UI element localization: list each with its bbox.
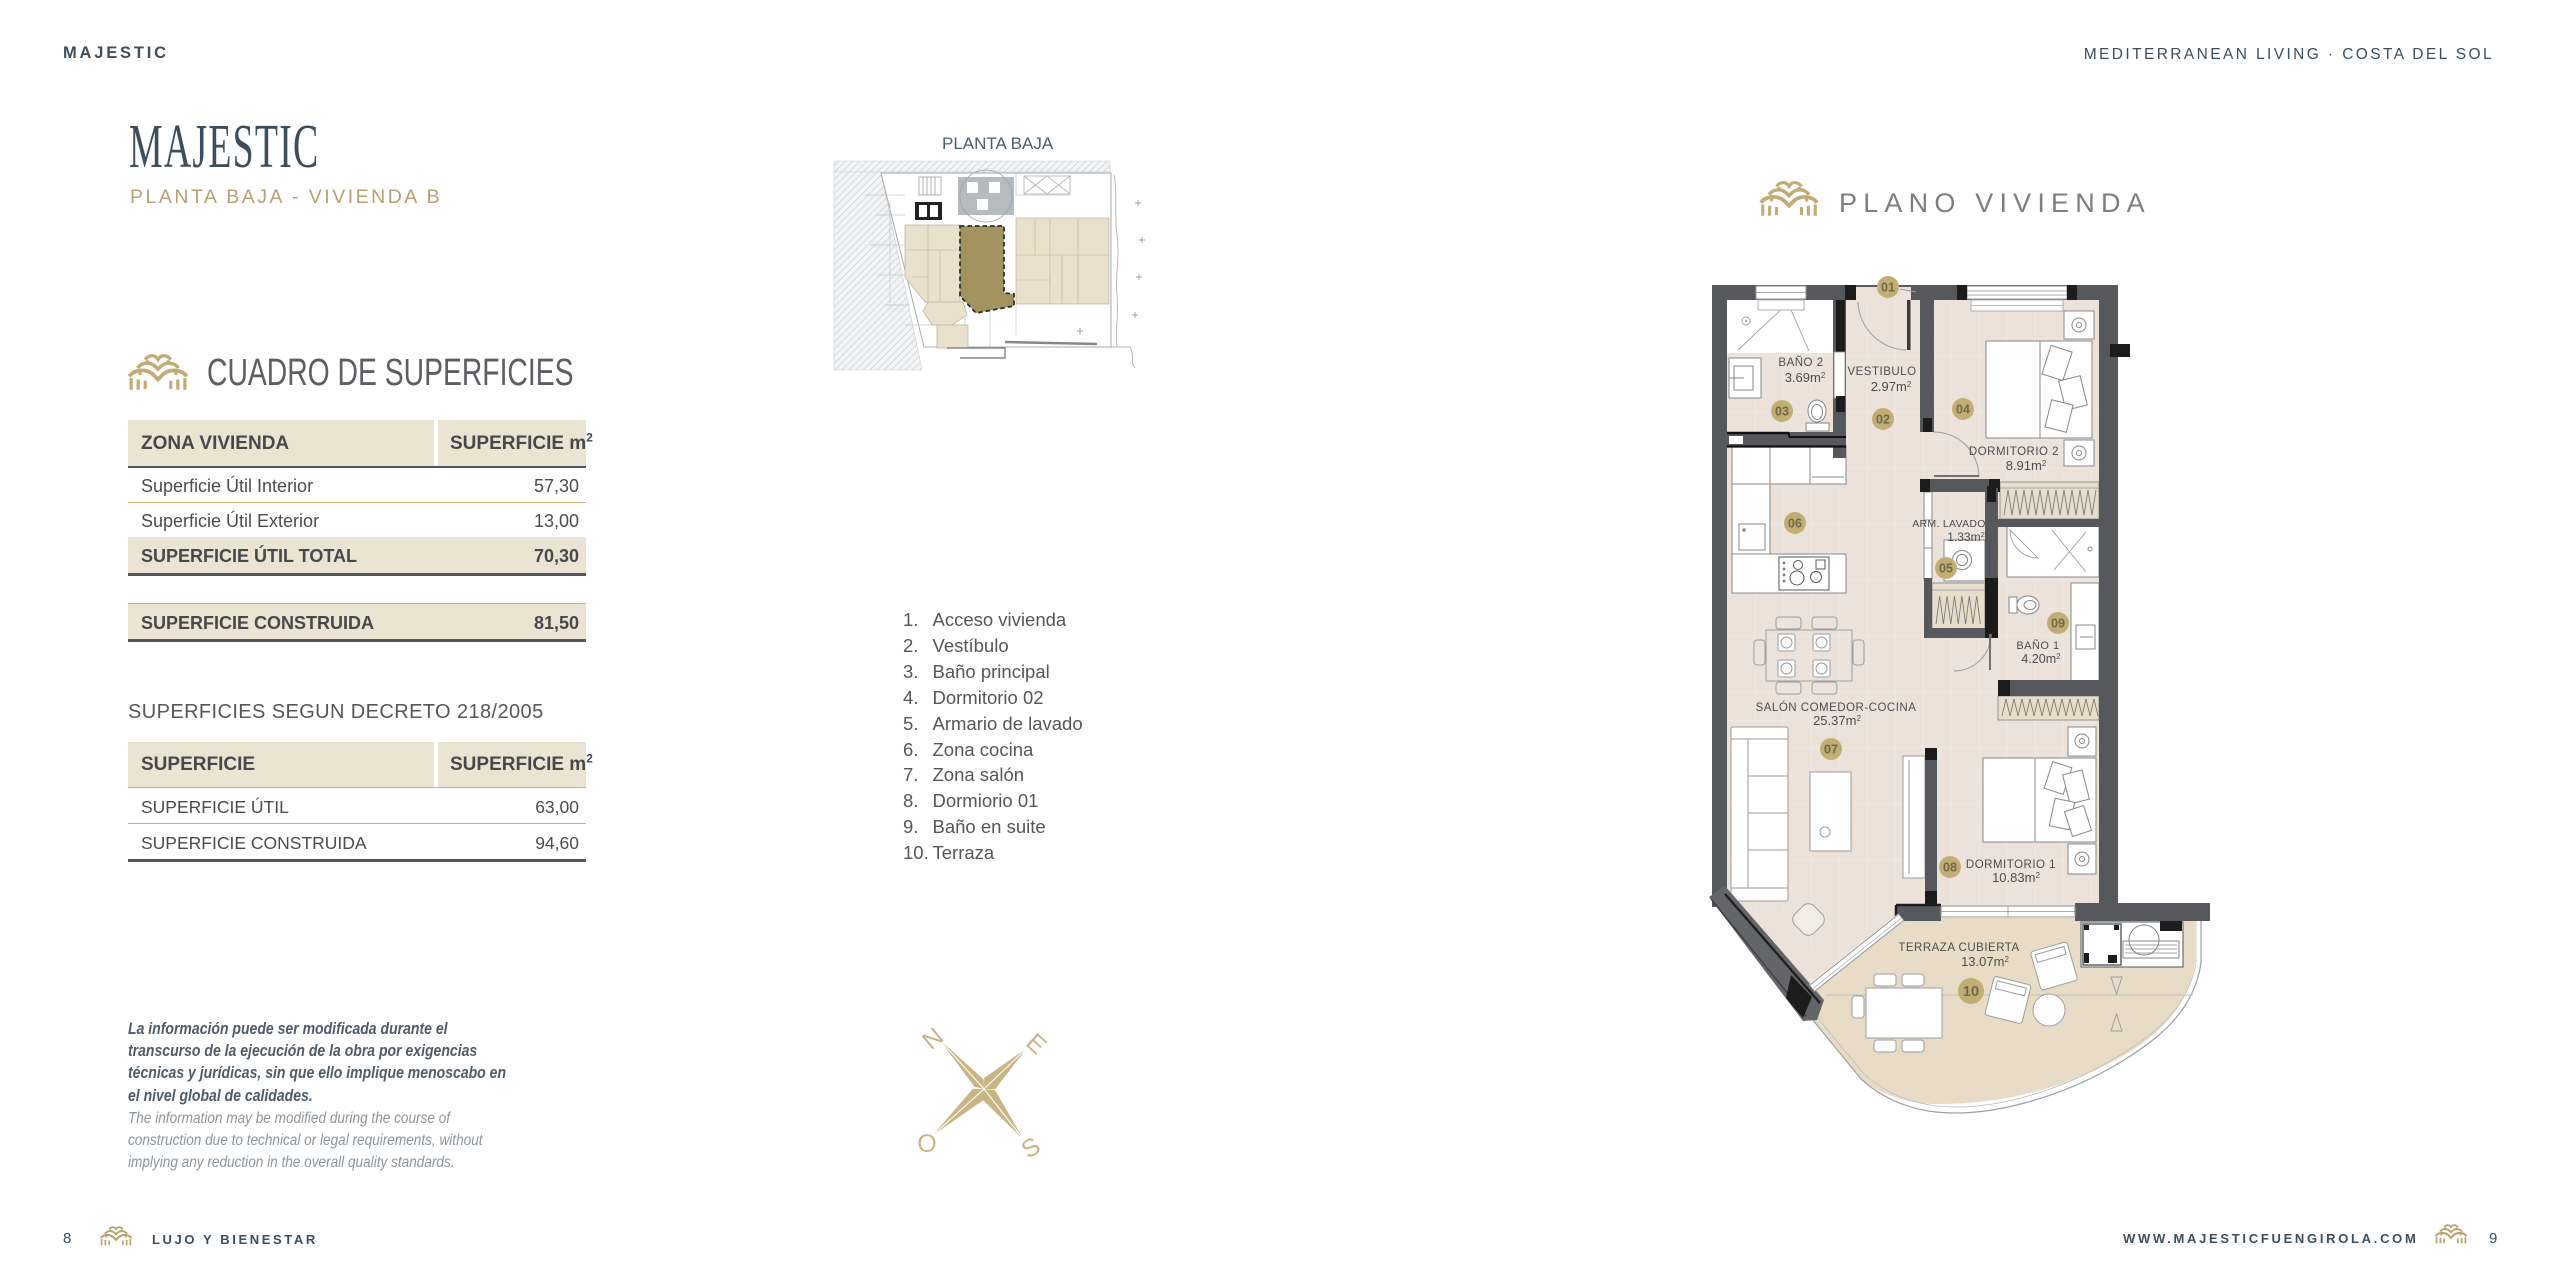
svg-text:13.07m2: 13.07m2 (1961, 954, 2009, 969)
svg-text:DORMITORIO 2: DORMITORIO 2 (1969, 446, 2059, 458)
svg-text:8.91m2: 8.91m2 (2006, 458, 2047, 473)
svg-text:BAÑO 1: BAÑO 1 (2016, 639, 2059, 652)
svg-text:09: 09 (2051, 617, 2065, 631)
svg-text:03: 03 (1775, 405, 1789, 419)
svg-text:01: 01 (1881, 281, 1895, 295)
svg-text:N: N (917, 1022, 949, 1055)
svg-text:BAÑO 2: BAÑO 2 (1778, 356, 1823, 369)
svg-text:10.83m2: 10.83m2 (1992, 870, 2040, 885)
svg-text:25.37m2: 25.37m2 (1813, 713, 1861, 728)
svg-text:ARM. LAVADO: ARM. LAVADO (1912, 518, 1986, 530)
svg-text:TERRAZA CUBIERTA: TERRAZA CUBIERTA (1898, 942, 2019, 954)
svg-text:VESTIBULO: VESTIBULO (1847, 366, 1916, 378)
svg-text:E: E (1020, 1028, 1051, 1060)
svg-text:08: 08 (1943, 861, 1957, 875)
svg-text:3.69m2: 3.69m2 (1785, 370, 1826, 385)
svg-text:05: 05 (1939, 562, 1953, 576)
svg-text:10: 10 (1963, 984, 1979, 1000)
svg-text:02: 02 (1876, 413, 1890, 427)
svg-text:04: 04 (1956, 403, 1970, 417)
svg-text:1.33m2: 1.33m2 (1947, 530, 1985, 544)
svg-text:2.97m2: 2.97m2 (1871, 379, 1912, 394)
svg-text:06: 06 (1788, 517, 1802, 531)
svg-text:07: 07 (1824, 743, 1838, 757)
svg-text:O: O (917, 1130, 936, 1158)
svg-text:4.20m2: 4.20m2 (2021, 652, 2061, 666)
